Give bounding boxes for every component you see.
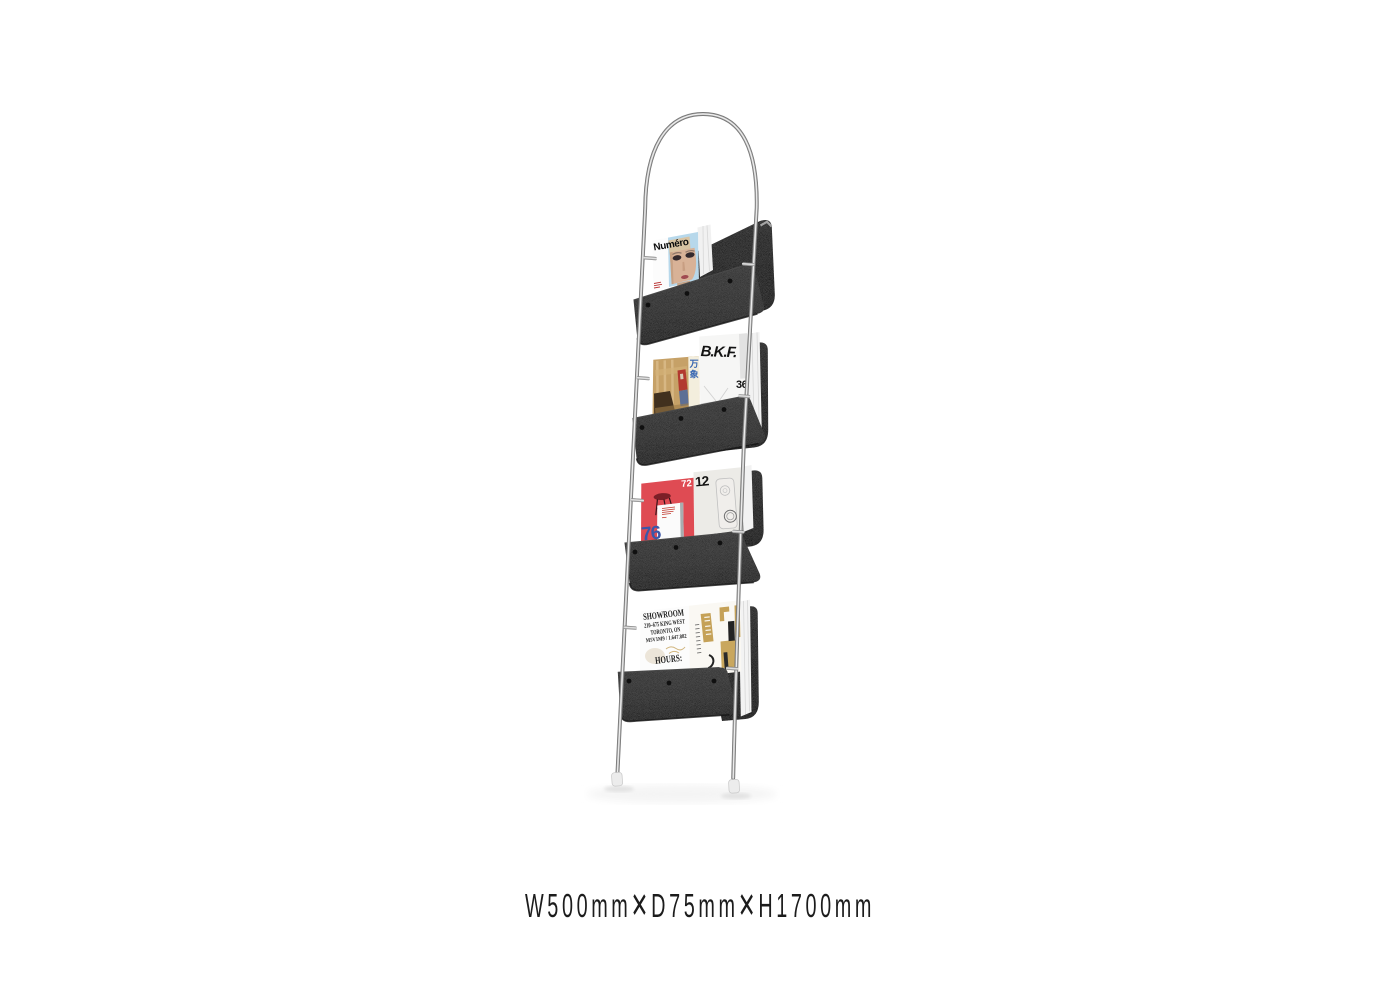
svg-text:72: 72 bbox=[681, 478, 692, 490]
svg-text:12: 12 bbox=[694, 473, 709, 489]
svg-text:万: 万 bbox=[689, 359, 699, 369]
svg-text:象: 象 bbox=[690, 369, 699, 380]
svg-text:B.K.F.: B.K.F. bbox=[700, 343, 737, 361]
